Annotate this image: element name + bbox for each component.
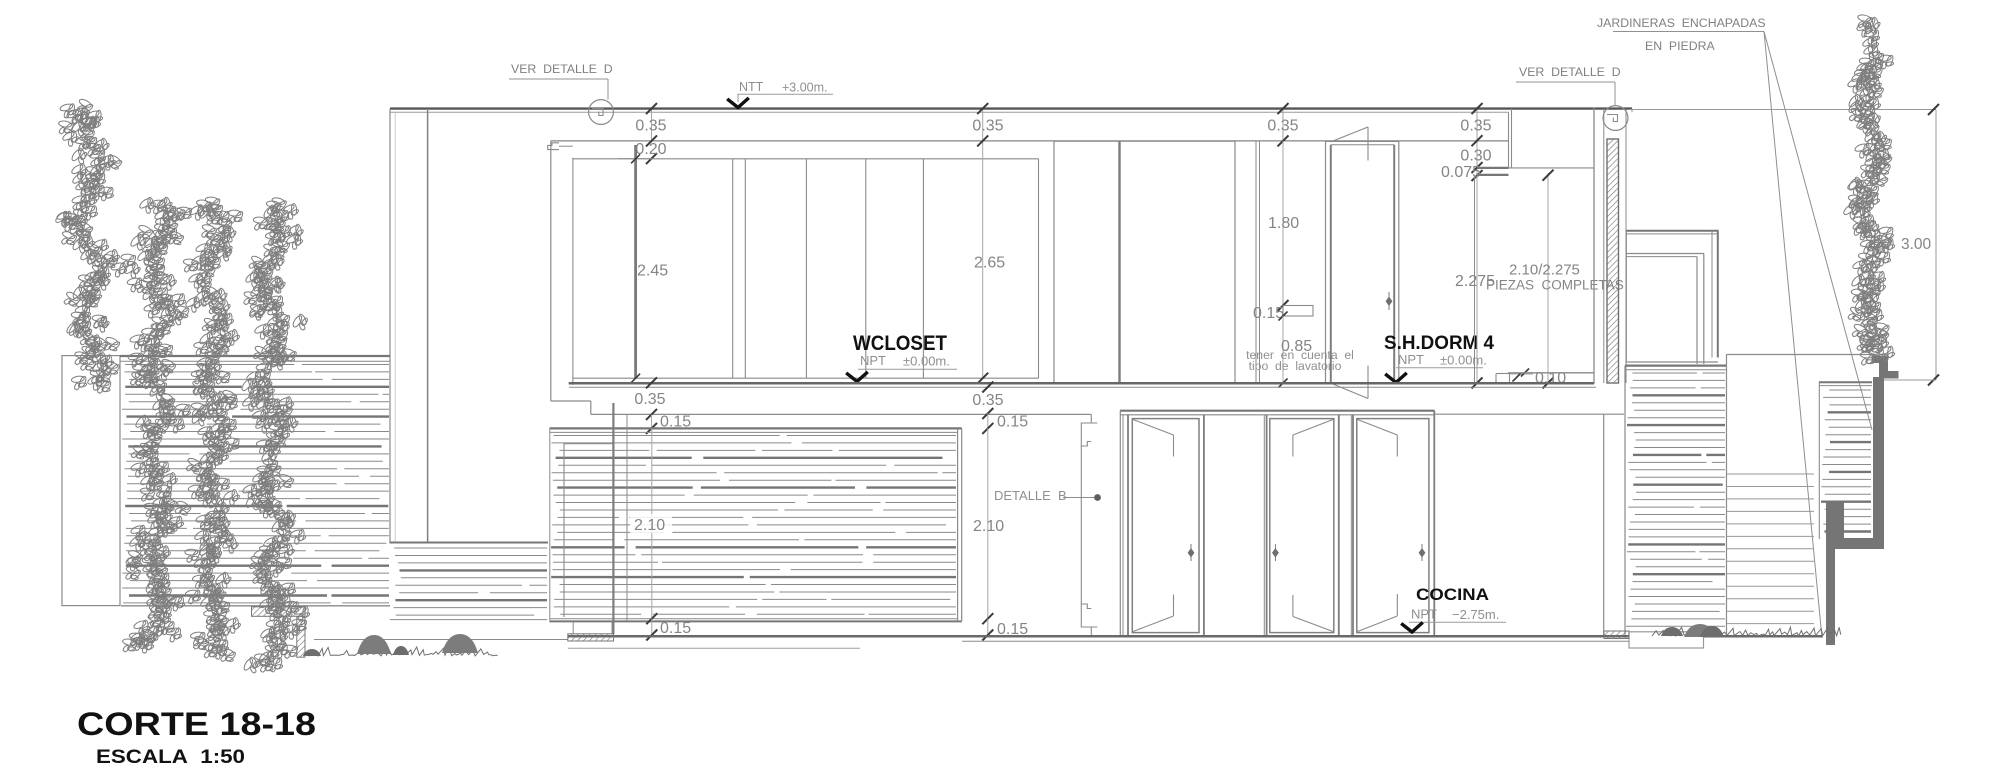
svg-text:CORTE 18-18: CORTE 18-18 [77,706,316,742]
svg-text:0.35: 0.35 [972,118,1003,135]
svg-text:0.30: 0.30 [1460,148,1491,165]
svg-text:2.10: 2.10 [973,518,1004,535]
svg-text:tipo de lavatorio: tipo de lavatorio [1249,359,1342,373]
svg-text:VER DETALLE D: VER DETALLE D [1519,65,1621,79]
svg-text:JARDINERAS ENCHAPADAS: JARDINERAS ENCHAPADAS [1597,16,1766,30]
svg-text:0.15: 0.15 [997,414,1028,431]
svg-text:EN PIEDRA: EN PIEDRA [1645,39,1715,53]
svg-text:2.65: 2.65 [974,255,1005,272]
svg-text:0.20: 0.20 [635,141,666,158]
svg-text:NTT: NTT [739,80,764,94]
svg-text:NPT: NPT [1411,607,1437,622]
svg-text:1.80: 1.80 [1268,215,1299,232]
svg-text:±0.00m.: ±0.00m. [903,354,950,369]
svg-text:NPT: NPT [1398,352,1424,367]
svg-text:2.10: 2.10 [634,517,665,534]
svg-text:ESCALA 1:50: ESCALA 1:50 [96,746,245,768]
svg-text:±0.00m.: ±0.00m. [1440,353,1487,368]
svg-text:COCINA: COCINA [1416,586,1489,604]
svg-text:3.00: 3.00 [1901,236,1932,253]
svg-text:DETALLE B: DETALLE B [994,488,1067,503]
svg-text:0.35: 0.35 [635,118,666,135]
svg-text:−2.75m.: −2.75m. [1452,607,1499,622]
svg-text:0.35: 0.35 [1460,118,1491,135]
svg-text:0.15: 0.15 [660,620,691,637]
svg-text:2.10/2.275: 2.10/2.275 [1509,262,1580,279]
svg-text:0.075: 0.075 [1441,164,1481,181]
svg-text:WCLOSET: WCLOSET [853,332,947,355]
svg-text:2.45: 2.45 [637,263,668,280]
svg-text:0.35: 0.35 [972,392,1003,409]
svg-text:NPT: NPT [860,353,886,368]
svg-text:VER DETALLE D: VER DETALLE D [511,62,613,76]
svg-text:+3.00m.: +3.00m. [782,81,828,95]
svg-text:0.35: 0.35 [634,391,665,408]
svg-text:0.35: 0.35 [1267,118,1298,135]
svg-text:PIEZAS COMPLETAS: PIEZAS COMPLETAS [1486,278,1624,293]
svg-text:S.H.DORM 4: S.H.DORM 4 [1384,333,1494,354]
